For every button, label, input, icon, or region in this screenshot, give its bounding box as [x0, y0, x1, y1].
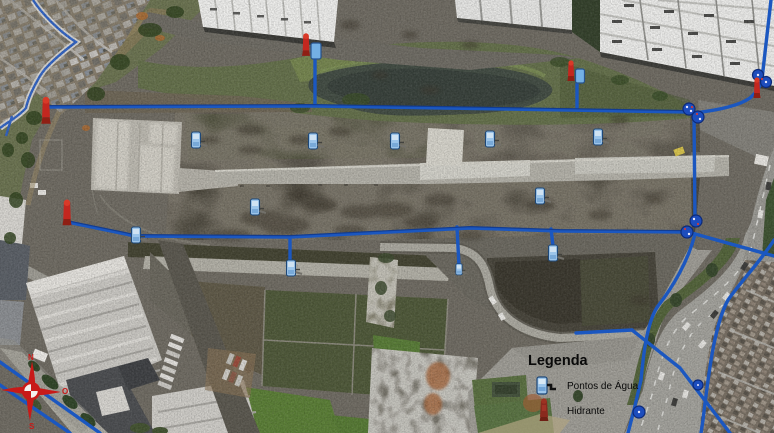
svg-text:Legenda: Legenda: [528, 353, 589, 369]
svg-text:Hidrante: Hidrante: [567, 406, 605, 417]
svg-text:Pontos de Água: Pontos de Água: [567, 379, 639, 392]
svg-text:O: O: [62, 387, 68, 396]
svg-text:N: N: [28, 353, 34, 362]
svg-text:S: S: [29, 422, 35, 431]
